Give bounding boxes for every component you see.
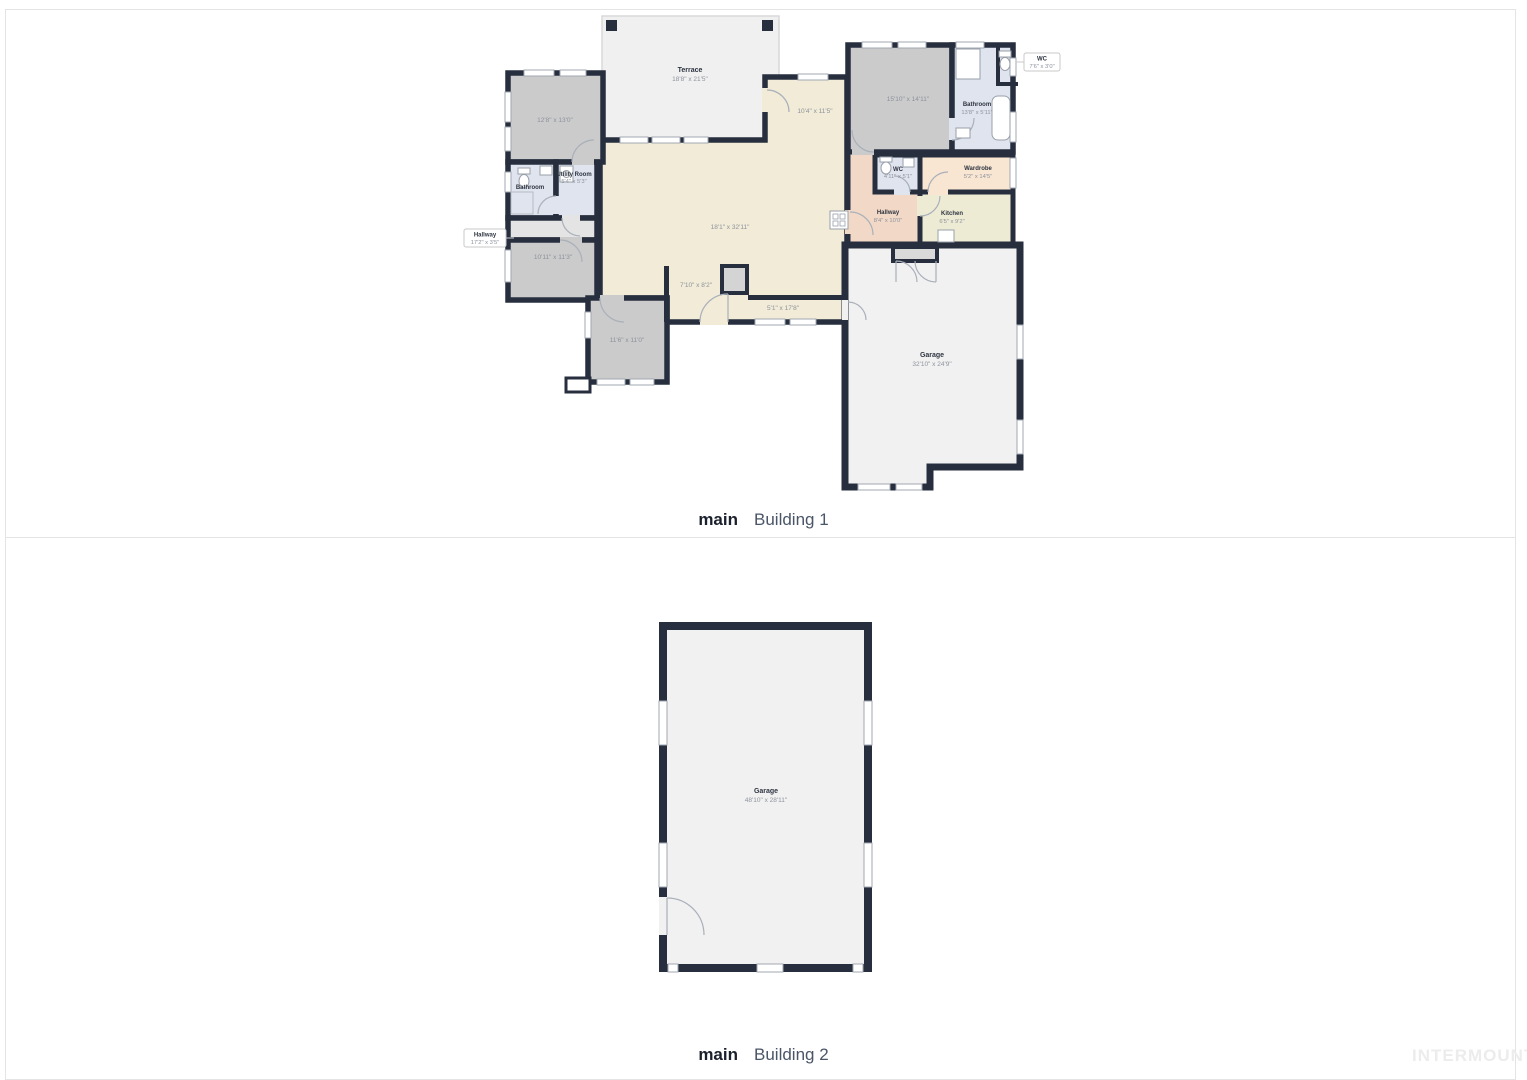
room-label: Bathroom [516,185,544,191]
room-label: Terrace [678,67,703,74]
caption-building-1: mainBuilding 1 [0,509,1527,531]
callout-hallway: Hallway 17'2" x 3'5" [464,229,514,247]
garage-alcove [893,247,937,261]
room-label: Garage [754,788,778,795]
room-bedroom-ml [508,240,597,300]
room-dims: 13'8" x 5'11" [961,110,992,116]
terrace-post [606,20,617,31]
floorplan-building-2: Garage 48'10" x 28'11" [650,615,880,980]
room-dims: 5'1" x 17'8" [767,305,800,312]
room-label: Wardrobe [964,166,992,172]
caption-building-2: mainBuilding 2 [0,1044,1527,1066]
room-label: WC [893,167,904,173]
room-hall-left [508,218,597,240]
caption-prefix: main [698,510,738,529]
room-label: Utility Room [556,172,591,178]
terrace-post [762,20,773,31]
callout-hallway-dims: 17'2" x 3'5" [471,240,500,246]
room-dims: 8'4" x 10'0" [874,218,903,224]
room-label: Hallway [877,210,900,216]
room-label: Kitchen [941,211,963,217]
caption-prefix: main [698,1045,738,1064]
room-label: Garage [920,352,944,359]
room-dims: 48'10" x 28'11" [745,797,788,804]
room-dims: 5'2" x 14'5" [964,174,993,180]
room-kitchen [920,192,1013,245]
caption-title: Building 2 [754,1045,829,1064]
room-label: Bathroom [963,102,991,108]
room-dims: 18'1" x 32'11" [711,224,750,231]
room-dims: 15'10" x 14'11" [887,96,930,103]
room-dims: 12'8" x 13'0" [537,117,573,124]
callout-hallway-label: Hallway [474,233,497,239]
callout-wc-dims: 7'6" x 3'0" [1029,64,1054,70]
panel-divider [5,537,1516,538]
floorplan-building-1: Hallway 17'2" x 3'5" WC 7'6" x 3'0" Terr… [455,10,1070,500]
room-dims: 32'10" x 24'9" [912,361,952,368]
room-dims: 10'4" x 11'5" [797,108,833,115]
callout-wc-label: WC [1037,57,1048,63]
watermark: INTERMOUNTAIN [1412,1046,1527,1066]
room-dims: 4'11" x 5'1" [884,174,912,180]
caption-title: Building 1 [754,510,829,529]
room-dims: 11'6" x 11'0" [610,337,645,344]
room-dims: 10'11" x 11'3" [534,254,573,261]
room-dims: 18'8" x 21'5" [672,76,708,83]
callout-wc: WC 7'6" x 3'0" [1016,53,1060,71]
room-dims: 7'10" x 8'2" [680,282,713,289]
room-dims: 6'5" x 9'2" [939,219,964,225]
room-dims: 5'4" x 5'3" [561,179,586,185]
